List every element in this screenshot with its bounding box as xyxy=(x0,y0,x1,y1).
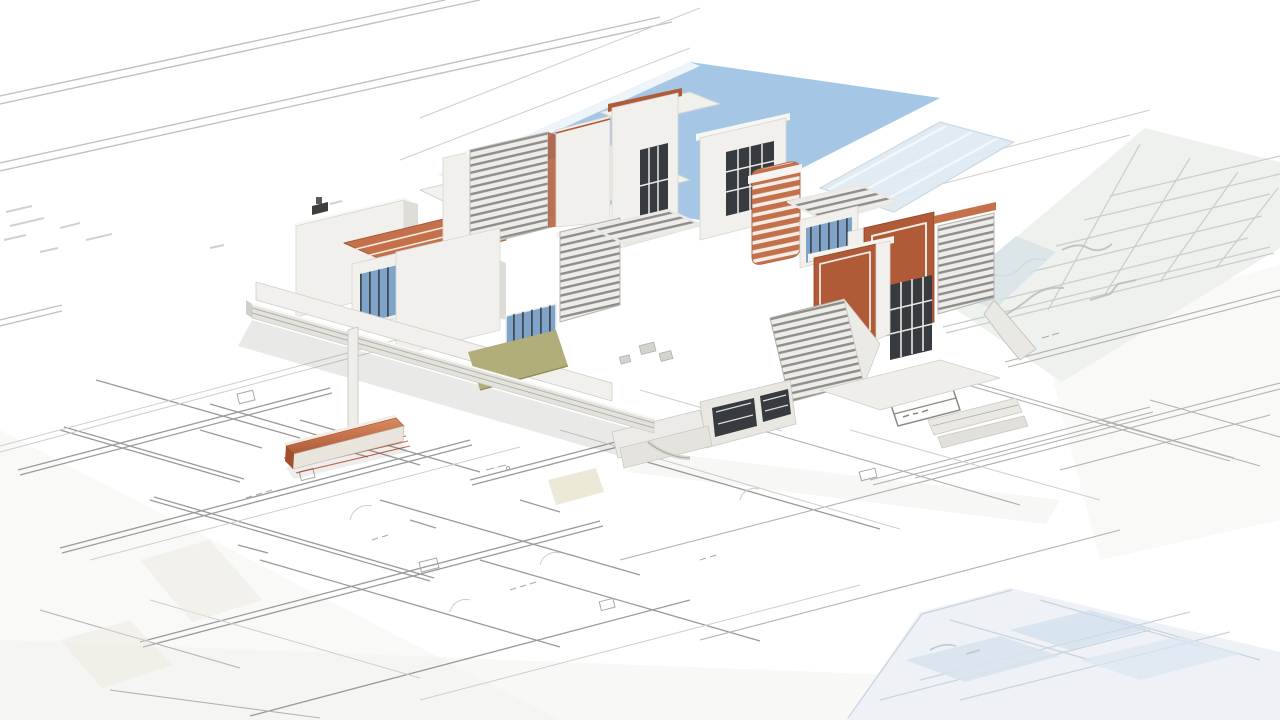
scene-canvas xyxy=(0,0,1280,720)
right-bay xyxy=(788,185,898,268)
plan-lines-light xyxy=(0,8,1150,700)
top-left-sheet-edges xyxy=(0,0,672,326)
house-model xyxy=(246,88,1036,468)
chimney xyxy=(312,202,328,215)
beam-end xyxy=(285,446,294,469)
left-wall-cap xyxy=(292,197,410,229)
pool-water xyxy=(438,62,940,220)
siteplan-lake xyxy=(952,236,1056,310)
chimney-stack xyxy=(316,197,322,204)
lower-floor-left xyxy=(256,228,673,401)
beam-top xyxy=(286,418,404,454)
plan-tint-patch-2 xyxy=(60,620,172,688)
house-shadow-right xyxy=(628,450,1060,524)
right-terraces xyxy=(820,360,1028,448)
architectural-render-image xyxy=(0,0,1280,720)
flat-roof-left xyxy=(420,145,690,228)
left-bay xyxy=(344,217,506,330)
flat-roof-center xyxy=(600,92,720,125)
plan-fixtures xyxy=(237,333,1059,611)
left-wall xyxy=(296,200,404,317)
plan-highlight-slab xyxy=(548,468,604,505)
background xyxy=(0,0,1280,720)
louver-ramp xyxy=(770,299,880,402)
bottom-wash xyxy=(0,640,1280,720)
slab-shadow xyxy=(238,320,654,462)
square-louver-roof xyxy=(592,210,702,244)
left-wall-return xyxy=(404,200,418,290)
loose-beam xyxy=(284,415,408,479)
center-tower xyxy=(608,88,682,250)
central-trim xyxy=(556,119,610,133)
basement-windows xyxy=(700,380,796,448)
top-left-sheet-scribbles xyxy=(4,201,342,252)
beam-face xyxy=(293,426,404,469)
front-steps xyxy=(612,410,712,468)
right-wash xyxy=(1040,265,1280,560)
grid-window-block xyxy=(696,113,790,240)
siteplan-sheet xyxy=(942,128,1280,382)
pool-near-coping xyxy=(438,62,700,180)
spiral-stair-tower xyxy=(748,162,802,264)
floor-slab xyxy=(246,300,654,436)
center-terracotta-wall xyxy=(808,236,894,358)
right-terracotta-block xyxy=(848,202,1036,360)
plan-tint-patch xyxy=(140,540,262,622)
mid-louver-cap xyxy=(556,216,624,238)
central-block xyxy=(556,116,610,227)
plan-lines-dark xyxy=(18,380,880,716)
louver-stack-left xyxy=(443,130,560,264)
glass-canopy xyxy=(820,122,1014,212)
mid-louver-wall xyxy=(560,218,620,322)
leader-lines xyxy=(284,431,410,473)
corner-wash-left xyxy=(0,430,560,720)
corner-plan-sheet xyxy=(846,588,1280,720)
plan-lines-mid xyxy=(40,290,1280,718)
blueprint-stamp xyxy=(890,386,960,426)
